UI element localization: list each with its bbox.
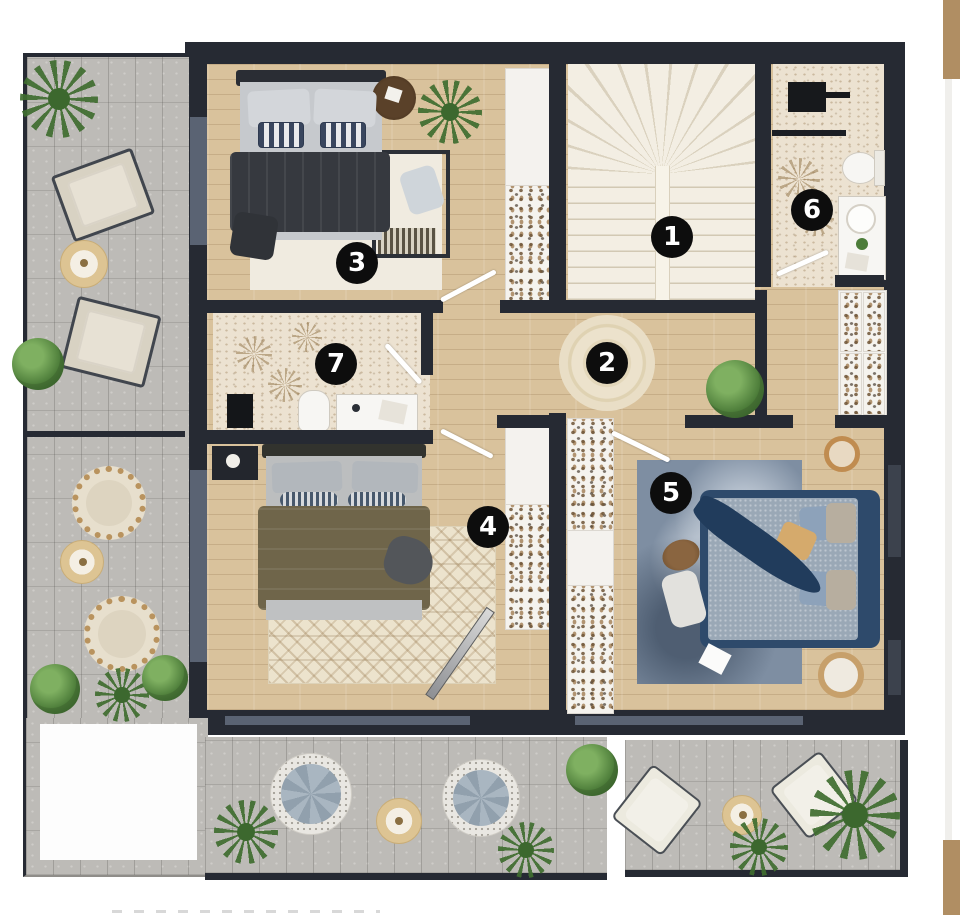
sink — [846, 204, 876, 234]
white-patio — [40, 724, 197, 860]
window-glazing — [888, 640, 901, 695]
wardrobe-clothes — [567, 418, 614, 532]
room-badge-1: 1 — [651, 216, 693, 258]
accent-pillow — [320, 122, 366, 148]
shrub-plant — [30, 664, 80, 714]
window-glazing — [888, 465, 901, 557]
shrub-plant — [12, 338, 64, 390]
room-badge-6: 6 — [791, 189, 833, 231]
bed-pillow — [271, 461, 342, 493]
room-badge-2: 2 — [586, 342, 628, 384]
interior-wall — [549, 64, 566, 313]
wardrobe-clothes — [505, 185, 553, 304]
sliding-door-glazing — [225, 716, 470, 725]
room-badge-3: 3 — [336, 242, 378, 284]
interior-wall — [755, 64, 771, 287]
faucet — [352, 404, 360, 412]
shrub-plant — [566, 744, 618, 796]
pouf-cushion — [453, 770, 509, 826]
pouf-cushion — [281, 764, 341, 824]
palm-plant — [498, 822, 554, 878]
toilet — [842, 152, 878, 184]
interior-wall — [500, 300, 763, 313]
jute-tray-table — [376, 798, 422, 844]
wardrobe-clothes — [840, 353, 862, 415]
window-glazing — [190, 470, 207, 662]
terrace-divider — [27, 431, 185, 437]
room-badge-5: 5 — [650, 472, 692, 514]
room-badge-4: 4 — [467, 506, 509, 548]
blanket-fold — [229, 211, 279, 261]
wardrobe-clothes — [863, 292, 885, 352]
shrub-plant — [142, 655, 188, 701]
wardrobe-clothes — [505, 504, 551, 630]
interior-wall — [207, 300, 443, 313]
shower-head — [788, 82, 826, 112]
wardrobe-clothes — [567, 585, 614, 714]
fern-decor — [268, 368, 302, 402]
round-side-table — [60, 540, 104, 584]
palm-plant — [214, 800, 278, 864]
floor-plan: 1 2 3 4 5 6 7 — [0, 0, 960, 915]
shower-arm — [826, 92, 850, 98]
interior-wall — [549, 413, 566, 712]
tick-marks — [112, 910, 380, 913]
palm-plant — [95, 668, 149, 722]
rug-fringe — [378, 228, 436, 254]
tan-block-bottom — [943, 840, 960, 915]
staircase-winders — [568, 64, 755, 174]
wardrobe-clothes — [840, 292, 862, 352]
bed-pillow — [351, 461, 418, 493]
potted-plant — [706, 360, 764, 418]
tv — [227, 394, 253, 428]
wardrobe-cabinet — [567, 530, 614, 587]
window-glazing — [190, 117, 207, 245]
decor-bowl — [824, 436, 860, 472]
wardrobe-cabinet — [505, 68, 553, 187]
wicker-chair — [72, 466, 146, 540]
interior-wall — [835, 275, 884, 287]
round-pouf — [442, 759, 520, 837]
bed-pillow — [826, 503, 856, 543]
toilet — [298, 390, 330, 432]
interior-wall — [421, 313, 433, 375]
fern-decor — [236, 336, 272, 372]
wardrobe-clothes — [863, 353, 885, 415]
palm-plant — [730, 818, 788, 876]
interior-wall — [835, 415, 890, 428]
toilet-tank — [874, 150, 885, 186]
wardrobe-cabinet — [505, 418, 551, 506]
table-lamp — [226, 454, 240, 468]
vanity-plant — [856, 238, 868, 250]
tan-block-top — [943, 0, 960, 79]
round-pouf — [270, 753, 352, 835]
interior-wall — [207, 430, 433, 444]
accent-pillow — [258, 122, 304, 148]
palm-plant — [810, 770, 900, 860]
page-edge — [945, 79, 952, 840]
sliding-door-glazing — [575, 716, 803, 725]
bed-sheet — [266, 600, 422, 620]
palm-plant — [20, 60, 98, 138]
room-badge-7: 7 — [315, 343, 357, 385]
fern-decor — [292, 322, 322, 352]
round-side-table — [818, 652, 864, 698]
palm-plant — [418, 80, 482, 144]
towel-rail — [772, 130, 846, 136]
round-coffee-table — [60, 240, 108, 288]
bed-pillow — [826, 570, 856, 610]
